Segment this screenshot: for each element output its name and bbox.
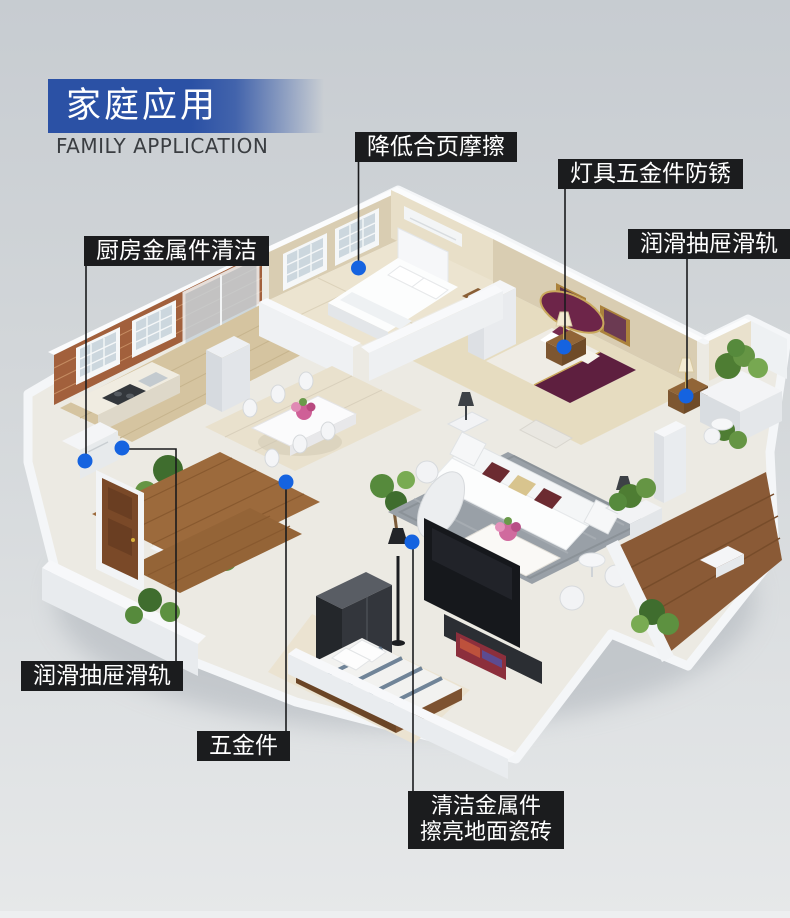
bottom-edge-strip xyxy=(0,911,790,918)
callout-kitchen-metal-cleaning: 厨房金属件清洁 xyxy=(84,236,269,266)
section-subtitle: FAMILY APPLICATION xyxy=(56,134,268,158)
section-banner: 家庭应用 xyxy=(48,79,324,133)
poster: 家庭应用 FAMILY APPLICATION 降低合页摩擦 灯具五金件防锈 润… xyxy=(0,0,790,918)
section-title: 家庭应用 xyxy=(48,79,324,133)
callout-lubricate-drawer-rails-right: 润滑抽屉滑轨 xyxy=(628,229,790,259)
marker-dot-dining xyxy=(279,475,294,490)
marker-dot-living-floor xyxy=(405,535,420,550)
marker-dot-kitchen-cabinet xyxy=(78,454,93,469)
callout-line-2: 擦亮地面瓷砖 xyxy=(420,820,552,846)
marker-dot-nightstand-drawer xyxy=(679,389,694,404)
callout-hardware: 五金件 xyxy=(197,731,290,761)
callout-reduce-hinge-friction: 降低合页摩擦 xyxy=(355,132,517,162)
callout-lamp-hardware-antirust: 灯具五金件防锈 xyxy=(558,159,743,189)
callout-line-1: 清洁金属件 xyxy=(420,794,552,820)
connector-lubricate-drawer-rails-left xyxy=(122,449,176,662)
marker-dot-kitchen-counter xyxy=(115,441,130,456)
callout-lubricate-drawer-rails-left: 润滑抽屉滑轨 xyxy=(21,661,183,691)
marker-dot-window-hinge xyxy=(351,261,366,276)
callout-clean-metal-polish-tiles: 清洁金属件 擦亮地面瓷砖 xyxy=(408,791,564,849)
marker-dot-lamp xyxy=(557,340,572,355)
